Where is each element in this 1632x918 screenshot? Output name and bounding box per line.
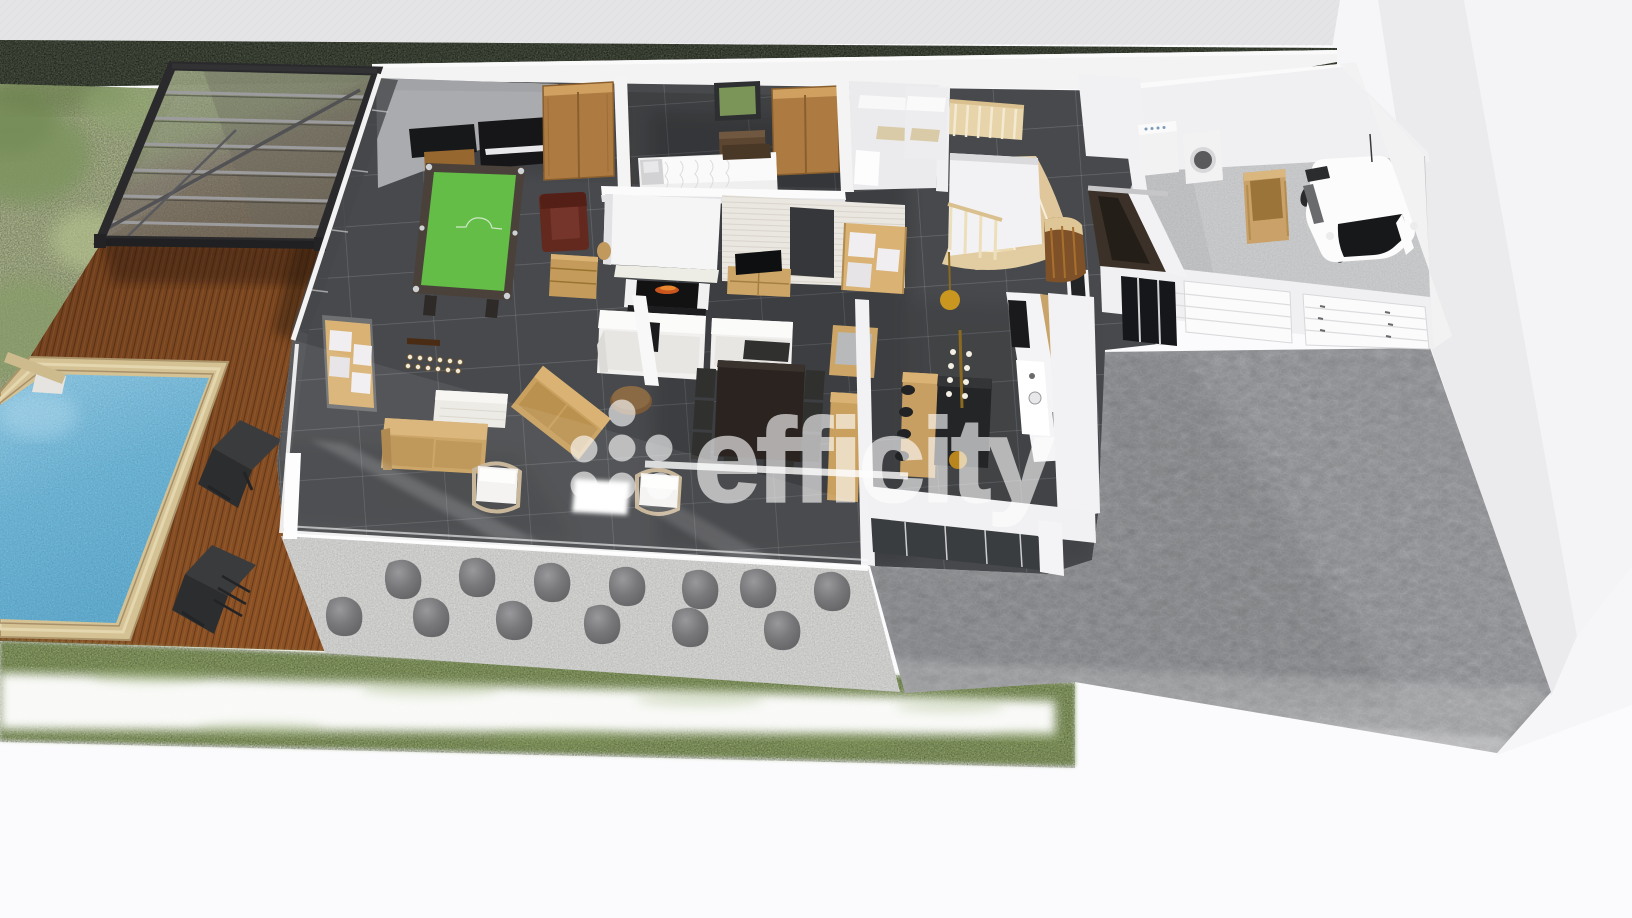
svg-text:efficity: efficity [694,395,1053,527]
